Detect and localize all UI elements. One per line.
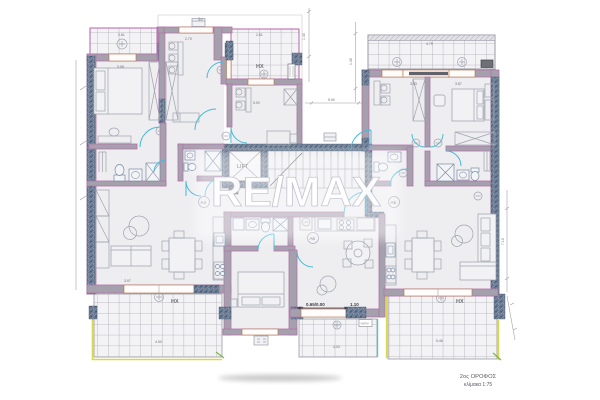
svg-text:3.87: 3.87	[455, 82, 462, 86]
svg-text:1.40: 1.40	[302, 33, 306, 40]
svg-text:ΘΕΡΜ: ΘΕΡΜ	[361, 322, 370, 326]
svg-text:2.70: 2.70	[185, 37, 192, 41]
svg-text:κλίμακα 1:75: κλίμακα 1:75	[464, 382, 493, 388]
svg-text:2ος ΟΡΟΦΟΣ: 2ος ΟΡΟΦΟΣ	[460, 374, 497, 380]
svg-text:ΗΛ: ΗΛ	[200, 19, 204, 22]
svg-text:3.98: 3.98	[117, 65, 124, 69]
svg-text:0.65/0.00: 0.65/0.00	[306, 302, 325, 307]
svg-text:2.81: 2.81	[256, 33, 263, 37]
svg-text:7.10: 7.10	[501, 238, 505, 245]
svg-text:1.10: 1.10	[350, 302, 359, 307]
svg-text:HX: HX	[456, 299, 464, 305]
svg-text:3.93: 3.93	[410, 82, 417, 86]
svg-text:5.90: 5.90	[328, 98, 335, 102]
svg-text:3.97: 3.97	[124, 279, 131, 283]
svg-text:RE/MAX: RE/MAX	[211, 168, 381, 215]
svg-text:1.40: 1.40	[349, 58, 353, 65]
svg-text:4.75: 4.75	[426, 42, 433, 46]
svg-text:4.03: 4.03	[333, 345, 340, 349]
svg-text:HX: HX	[171, 299, 179, 305]
svg-text:5.92: 5.92	[253, 101, 260, 105]
svg-text:5.46: 5.46	[436, 339, 443, 343]
svg-text:2.81: 2.81	[118, 33, 125, 37]
svg-text:HX: HX	[256, 64, 264, 70]
svg-text:4.50: 4.50	[155, 340, 162, 344]
